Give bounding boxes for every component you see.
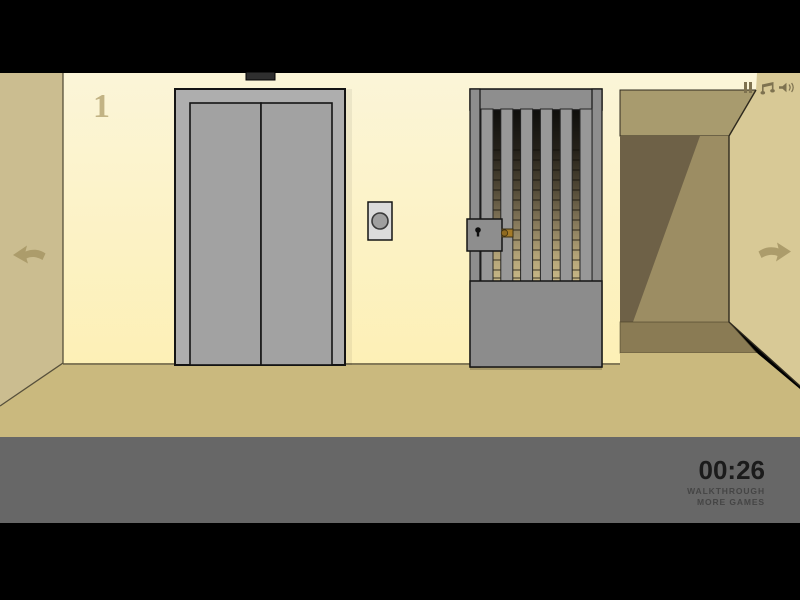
gate-floor-shadow xyxy=(470,367,602,370)
walkthrough-link[interactable]: WALKTHROUGH xyxy=(687,486,765,497)
elevator xyxy=(175,89,352,365)
elevator-door-right[interactable] xyxy=(261,103,332,365)
elevator-door-left[interactable] xyxy=(190,103,261,365)
game-stage: 1 00:26 WALKTHROUGH MORE GAMES xyxy=(0,0,800,600)
left-wall xyxy=(0,73,63,406)
gate-bottom-panel xyxy=(470,281,602,367)
call-button[interactable] xyxy=(372,213,388,229)
latch[interactable] xyxy=(501,229,513,237)
lock-box[interactable] xyxy=(467,219,502,251)
elevator-call-panel xyxy=(368,202,392,240)
bottom-letterbox xyxy=(0,523,800,600)
floor xyxy=(0,353,800,437)
gate-header xyxy=(470,89,602,110)
more-games-link[interactable]: MORE GAMES xyxy=(687,497,765,508)
stairway-behind-gate xyxy=(480,108,592,282)
front-wall-top-strip xyxy=(620,73,757,90)
scene xyxy=(0,0,800,600)
elevator-indicator-panel xyxy=(246,72,275,80)
elevator-frame-shadow xyxy=(345,89,352,365)
foreground-band xyxy=(0,437,800,523)
